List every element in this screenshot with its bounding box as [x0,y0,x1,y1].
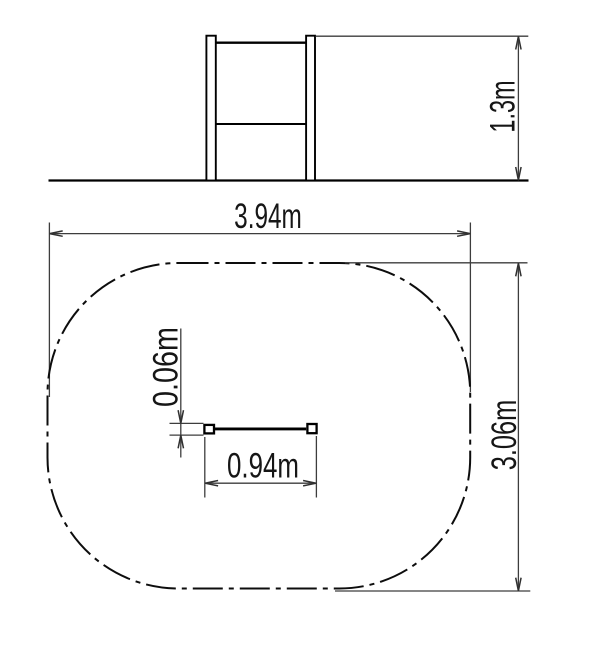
svg-text:3.06m: 3.06m [485,400,524,471]
svg-text:0.06m: 0.06m [146,327,185,407]
svg-text:0.94m: 0.94m [227,446,299,486]
svg-text:1.3m: 1.3m [484,80,523,132]
svg-text:3.94m: 3.94m [234,198,302,236]
